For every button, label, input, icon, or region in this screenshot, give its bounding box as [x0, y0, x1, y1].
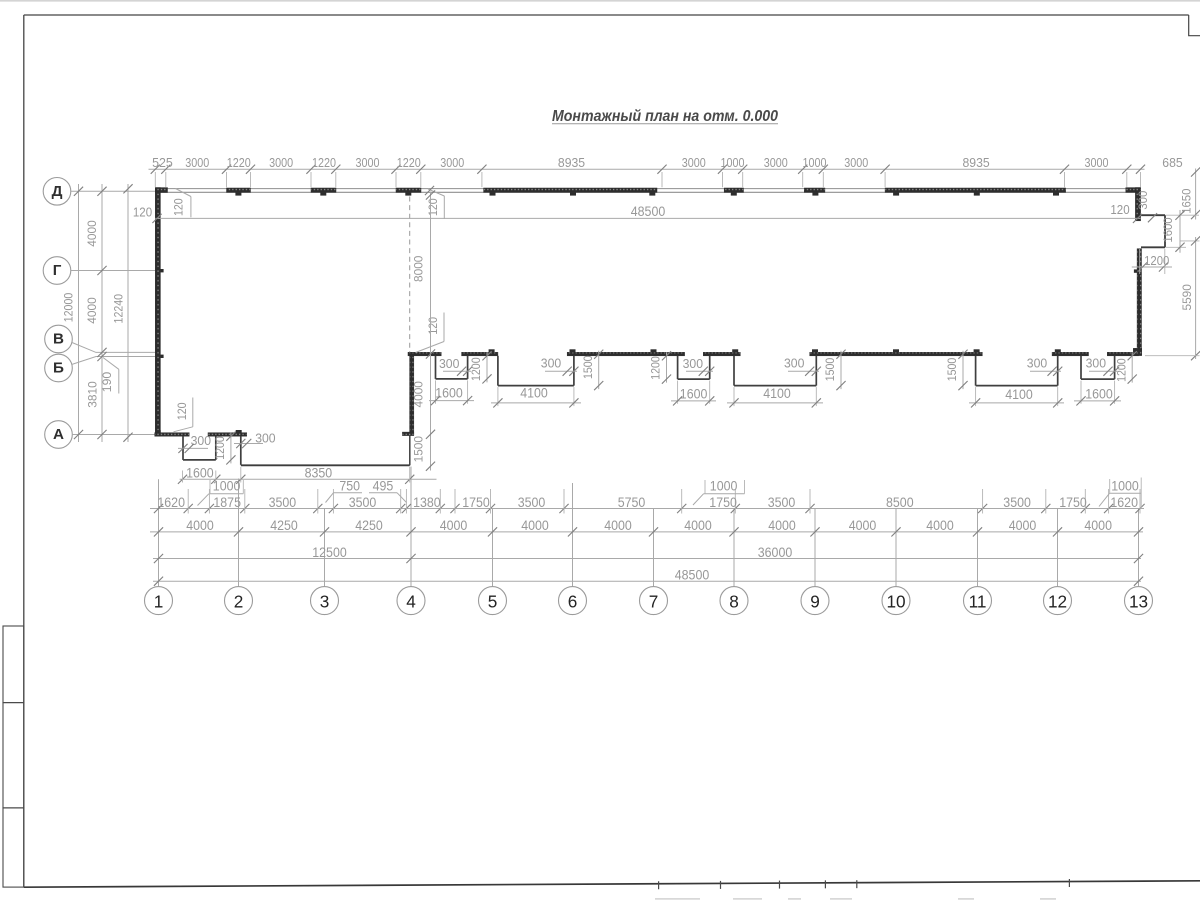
svg-text:12000: 12000 [62, 293, 76, 323]
svg-text:8350: 8350 [305, 466, 333, 481]
svg-text:1600: 1600 [435, 385, 463, 400]
svg-text:1750: 1750 [709, 495, 737, 510]
svg-text:4000: 4000 [684, 518, 712, 533]
svg-text:300: 300 [191, 434, 211, 448]
svg-text:300: 300 [1136, 190, 1150, 209]
svg-text:1750: 1750 [1059, 495, 1087, 510]
svg-text:1620: 1620 [1110, 495, 1138, 510]
svg-text:3000: 3000 [185, 155, 209, 170]
svg-text:120: 120 [133, 205, 152, 219]
svg-text:1620: 1620 [157, 495, 185, 510]
svg-text:8000: 8000 [412, 256, 426, 282]
svg-text:3000: 3000 [356, 155, 380, 170]
svg-text:1600: 1600 [186, 466, 214, 481]
svg-text:1000: 1000 [213, 479, 241, 494]
svg-text:Монтажный план на отм. 0.000: Монтажный план на отм. 0.000 [552, 108, 778, 125]
svg-text:А: А [53, 426, 64, 443]
svg-text:12240: 12240 [112, 294, 126, 324]
svg-text:1500: 1500 [823, 358, 837, 382]
svg-text:1600: 1600 [1085, 387, 1113, 402]
svg-text:525: 525 [152, 155, 173, 170]
svg-text:3000: 3000 [440, 155, 464, 170]
svg-text:Б: Б [53, 360, 64, 377]
svg-text:4100: 4100 [520, 386, 548, 401]
svg-text:3: 3 [320, 591, 330, 611]
svg-text:8500: 8500 [886, 495, 914, 510]
svg-text:4000: 4000 [440, 518, 468, 533]
svg-text:3500: 3500 [349, 495, 377, 510]
svg-text:4000: 4000 [85, 220, 99, 246]
svg-text:В: В [53, 331, 64, 348]
svg-text:300: 300 [1086, 357, 1106, 371]
svg-text:1600: 1600 [1161, 217, 1175, 242]
svg-text:10: 10 [886, 591, 905, 611]
svg-text:2: 2 [234, 591, 244, 611]
svg-text:4000: 4000 [1084, 518, 1112, 533]
svg-text:8935: 8935 [558, 155, 585, 170]
svg-text:4100: 4100 [1005, 387, 1033, 402]
svg-text:3000: 3000 [682, 155, 706, 170]
svg-text:1200: 1200 [469, 357, 483, 381]
svg-text:4000: 4000 [926, 518, 954, 533]
svg-text:36000: 36000 [758, 545, 793, 560]
svg-text:1750: 1750 [462, 495, 490, 510]
svg-text:4000: 4000 [604, 518, 632, 533]
svg-text:7: 7 [649, 591, 659, 611]
svg-text:3000: 3000 [764, 155, 788, 170]
svg-text:120: 120 [171, 198, 185, 216]
svg-text:300: 300 [683, 357, 703, 371]
svg-text:4000: 4000 [85, 297, 99, 323]
svg-text:1220: 1220 [397, 155, 421, 170]
svg-text:4100: 4100 [763, 386, 791, 401]
svg-text:120: 120 [175, 402, 189, 420]
svg-text:5750: 5750 [618, 495, 646, 510]
svg-text:4250: 4250 [355, 518, 383, 533]
svg-text:1000: 1000 [721, 155, 745, 170]
svg-text:1200: 1200 [649, 356, 663, 380]
svg-text:1200: 1200 [1144, 253, 1169, 268]
svg-text:48500: 48500 [631, 204, 666, 219]
svg-text:1000: 1000 [710, 479, 738, 494]
svg-text:3000: 3000 [844, 155, 868, 170]
svg-text:Д: Д [52, 183, 63, 200]
svg-text:1500: 1500 [412, 436, 426, 462]
svg-text:190: 190 [100, 372, 114, 392]
svg-text:120: 120 [1110, 203, 1129, 217]
svg-text:11: 11 [969, 591, 987, 611]
svg-text:1000: 1000 [1111, 479, 1139, 494]
svg-text:1380: 1380 [413, 495, 441, 510]
svg-text:48500: 48500 [675, 568, 710, 583]
svg-text:8: 8 [729, 591, 739, 611]
svg-text:685: 685 [1162, 155, 1182, 170]
svg-text:12: 12 [1048, 591, 1067, 611]
svg-text:300: 300 [541, 357, 561, 371]
svg-text:4000: 4000 [521, 518, 549, 533]
svg-text:300: 300 [439, 357, 459, 371]
svg-text:Г: Г [53, 262, 62, 279]
svg-text:1220: 1220 [227, 155, 251, 170]
svg-text:4000: 4000 [849, 518, 877, 533]
svg-text:750: 750 [339, 479, 360, 494]
svg-text:12500: 12500 [312, 545, 347, 560]
svg-text:1500: 1500 [581, 355, 595, 379]
svg-text:3500: 3500 [1003, 495, 1031, 510]
svg-text:1: 1 [154, 591, 164, 611]
svg-text:3810: 3810 [86, 381, 100, 407]
svg-text:4000: 4000 [768, 518, 796, 533]
svg-text:3500: 3500 [269, 495, 297, 510]
svg-text:13: 13 [1129, 591, 1148, 611]
svg-text:1875: 1875 [213, 495, 241, 510]
svg-text:1500: 1500 [945, 358, 959, 382]
svg-text:1600: 1600 [680, 387, 708, 402]
svg-text:1000: 1000 [803, 155, 827, 170]
svg-text:5: 5 [488, 591, 498, 611]
svg-text:6: 6 [568, 591, 578, 611]
svg-text:9: 9 [810, 591, 820, 611]
svg-text:1650: 1650 [1180, 189, 1194, 214]
svg-text:300: 300 [784, 356, 804, 370]
svg-text:3000: 3000 [1085, 155, 1109, 170]
svg-text:3500: 3500 [768, 495, 796, 510]
svg-text:4: 4 [406, 591, 416, 611]
svg-text:120: 120 [426, 317, 440, 335]
svg-text:3000: 3000 [269, 155, 293, 170]
svg-text:120: 120 [426, 198, 440, 216]
svg-text:5590: 5590 [1180, 284, 1194, 310]
svg-text:495: 495 [373, 479, 394, 494]
svg-text:4250: 4250 [270, 518, 298, 533]
svg-text:3500: 3500 [518, 495, 546, 510]
svg-text:4000: 4000 [186, 518, 214, 533]
svg-text:300: 300 [1027, 357, 1047, 371]
svg-text:1200: 1200 [213, 436, 227, 460]
svg-text:4000: 4000 [1009, 518, 1037, 533]
svg-text:1220: 1220 [312, 155, 336, 170]
svg-text:8935: 8935 [963, 155, 990, 170]
svg-text:4000: 4000 [412, 381, 426, 407]
